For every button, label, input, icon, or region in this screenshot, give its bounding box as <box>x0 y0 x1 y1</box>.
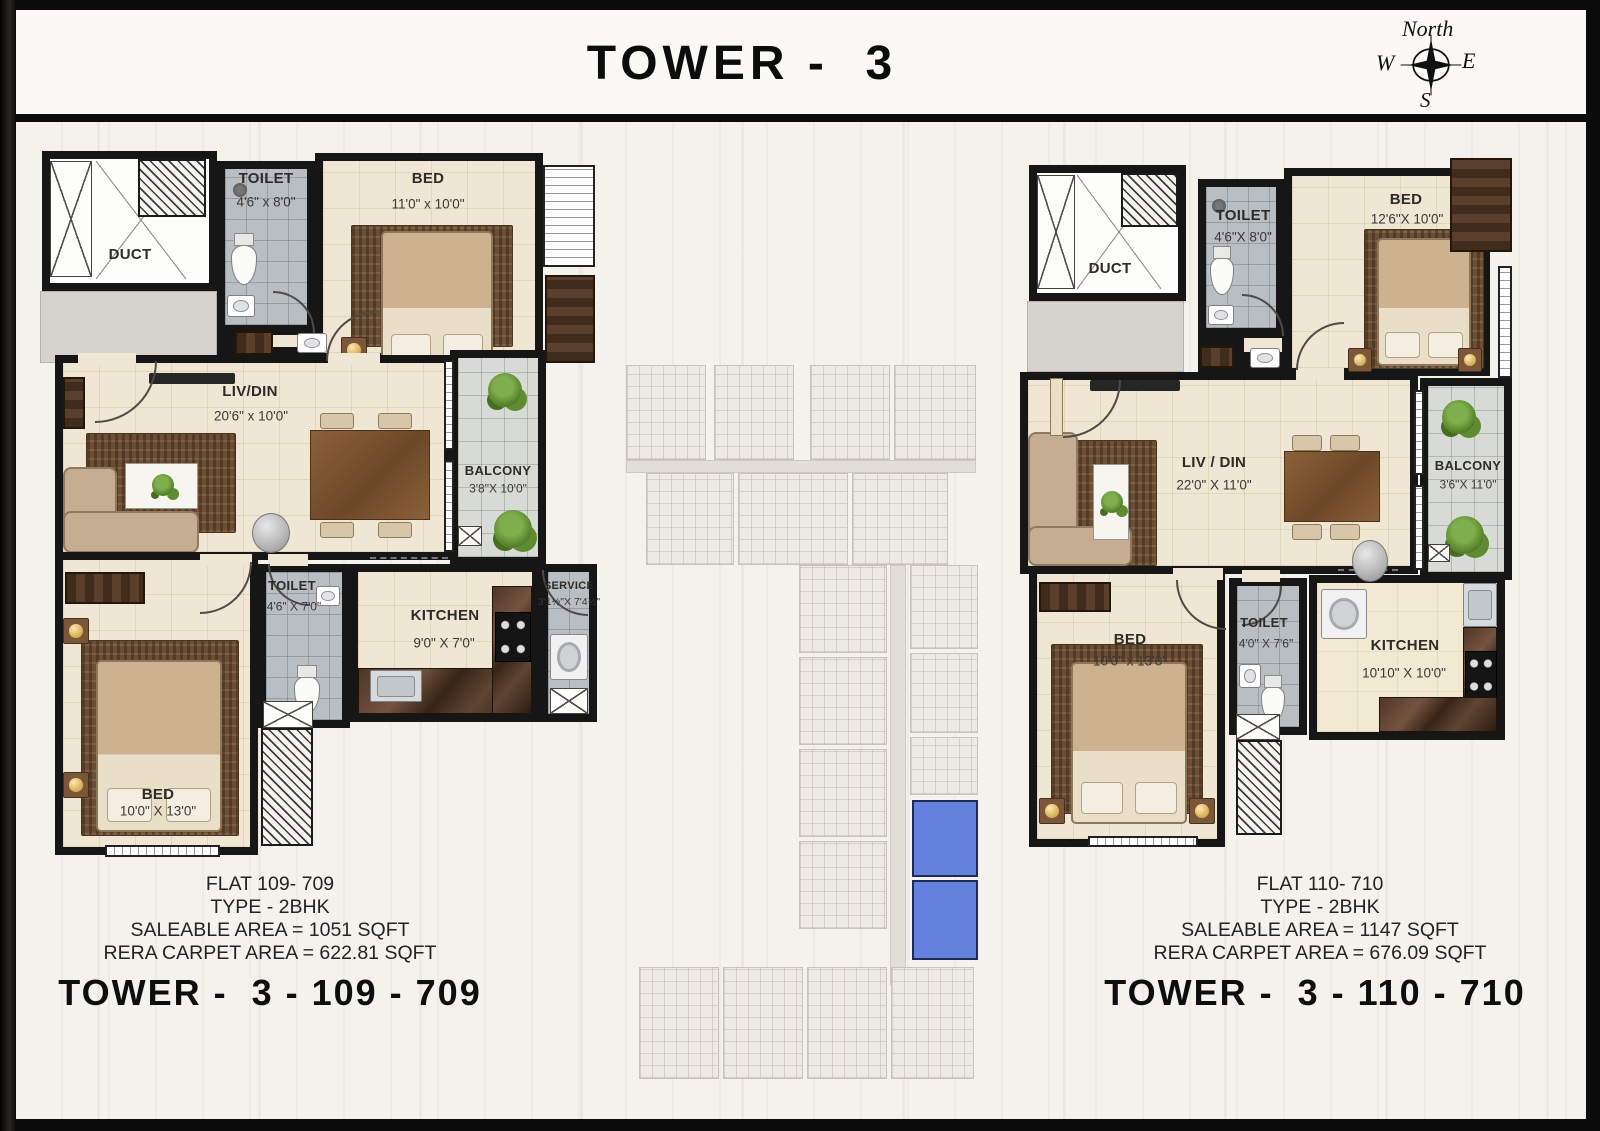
wardrobe <box>545 275 595 363</box>
window-box <box>1498 266 1512 378</box>
side-table <box>63 618 89 644</box>
washing-machine-icon <box>1321 589 1367 639</box>
shaft-xbox <box>1236 714 1280 740</box>
balcony-window <box>444 460 454 552</box>
balcony-window <box>1414 485 1424 570</box>
keyplan-cluster <box>891 967 974 1079</box>
room-dim-bed-bottom: 10'0" x 13'0" <box>1093 655 1167 670</box>
keyplan-cluster <box>910 653 978 733</box>
chair <box>320 522 354 538</box>
keyplan-corridor <box>890 565 906 985</box>
chair <box>378 522 412 538</box>
side-table <box>1039 798 1065 824</box>
room-label-livdin: LIV / DIN <box>1182 455 1246 472</box>
keyplan-cluster <box>626 365 706 460</box>
room-dim-toilet-bottom: 4'0" X 7'6" <box>1239 637 1293 650</box>
flat-b-info-line: RERA CARPET AREA = 676.09 SQFT <box>1130 942 1510 965</box>
keyplan-cluster <box>646 473 734 565</box>
keyplan-cluster <box>639 967 719 1079</box>
keyplan-cluster <box>738 473 848 565</box>
flat-a-info: FLAT 109- 709 TYPE - 2BHK SALEABLE AREA … <box>80 873 460 965</box>
flat-b-info-line: FLAT 110- 710 <box>1130 873 1510 896</box>
compass-west-label: W <box>1376 50 1394 76</box>
window-strip <box>1088 836 1198 847</box>
room-dim-kitchen: 10'10" X 10'0" <box>1362 667 1446 682</box>
keyplan-cluster <box>799 749 887 837</box>
room-label-balcony: BALCONY <box>465 464 531 478</box>
plant-icon <box>152 474 174 496</box>
chair <box>1330 435 1360 451</box>
keyplan-cluster <box>799 841 887 929</box>
chair <box>378 413 412 429</box>
flat-a-balcony <box>450 350 546 565</box>
room-dim-bed-top: 12'6"X 10'0" <box>1371 213 1444 228</box>
flat-b-kitchen-room <box>1309 575 1505 740</box>
keyplan-highlight-unit-109 <box>912 800 978 877</box>
keyplan-cluster <box>799 657 887 745</box>
shaft-xbox <box>263 701 313 728</box>
room-dim-bed-top: 11'0" x 10'0" <box>391 198 464 213</box>
keyplan-cluster <box>910 565 978 649</box>
kitchen-sink-icon <box>370 670 422 702</box>
washing-machine-icon <box>550 634 588 680</box>
page-title: TOWER - 3 <box>14 36 1470 91</box>
room-label-toilet-top: TOILET <box>1216 208 1271 225</box>
keyplan-cluster <box>894 365 976 460</box>
washbasin-icon <box>1250 348 1280 368</box>
plant-icon <box>1446 516 1484 554</box>
side-table <box>63 772 89 798</box>
flat-a-duct-block <box>42 151 217 291</box>
plant-icon <box>488 373 522 407</box>
keyplan-cluster <box>723 967 803 1079</box>
room-label-kitchen: KITCHEN <box>411 608 480 625</box>
hob-icon <box>495 612 531 662</box>
wall-cabinet <box>63 377 85 429</box>
vanity-counter <box>1200 346 1234 368</box>
room-label-bed-bottom: BED <box>142 787 175 804</box>
hob-icon <box>1465 651 1497 699</box>
room-dim-toilet-top: 4'6" x 8'0" <box>236 196 295 211</box>
flat-a-info-line: FLAT 109- 709 <box>80 873 460 896</box>
room-dim-balcony: 3'8"X 10'0" <box>469 482 527 495</box>
flat-b-ledge-slab <box>1027 301 1184 372</box>
side-table <box>1189 798 1215 824</box>
flat-b-plan: DUCT TOILET 4'6"X 8'0" BED 12'6"X 10'0" … <box>1008 150 1515 832</box>
kitchen-sink-icon <box>1463 583 1497 627</box>
flat-b-info-line: TYPE - 2BHK <box>1130 896 1510 919</box>
washbasin-icon <box>297 333 327 353</box>
keyplan-cluster <box>714 365 794 460</box>
plant-icon <box>1101 491 1123 513</box>
shaft-xbox <box>1037 175 1075 289</box>
wardrobe <box>1039 582 1111 612</box>
dining-table <box>1284 451 1380 522</box>
page-frame: TOWER - 3 North W E S <box>0 0 1600 1131</box>
sofa-seat <box>63 511 199 553</box>
toilet-wc-icon <box>231 245 257 285</box>
double-bed <box>1377 238 1471 366</box>
shaft-hatch <box>1236 740 1282 835</box>
flat-a-tower-label: TOWER - 3 - 109 - 709 <box>40 975 500 1011</box>
keyplan-cluster <box>810 365 890 460</box>
room-dim-kitchen: 9'0" X 7'0" <box>413 637 474 652</box>
room-label-toilet-bottom: TOILET <box>1240 616 1288 630</box>
washbasin-icon <box>1208 305 1234 325</box>
washbasin-icon <box>227 295 255 317</box>
window-box <box>543 165 595 267</box>
side-table <box>1458 348 1482 372</box>
balcony-window <box>444 360 454 450</box>
room-dim-livdin: 22'0" X 11'0" <box>1176 479 1251 494</box>
chair <box>1292 435 1322 451</box>
compass-rose-icon: North W E S <box>1340 14 1520 114</box>
side-table <box>1348 348 1372 372</box>
kitchen-counter <box>1379 697 1497 732</box>
entry-door-leaf <box>1050 378 1063 436</box>
door-opening <box>1173 568 1223 580</box>
room-dim-toilet-top: 4'6"X 8'0" <box>1214 231 1272 246</box>
plant-icon <box>494 510 532 548</box>
flat-b-tower-label: TOWER - 3 - 110 - 710 <box>1085 975 1545 1011</box>
window-strip <box>105 845 220 857</box>
drain-xbox <box>550 688 588 714</box>
room-dim-bed-bottom: 10'0" X 13'0" <box>120 805 196 820</box>
compass-star-icon <box>1395 32 1467 98</box>
water-purifier <box>252 513 290 553</box>
header-bar: TOWER - 3 North W E S <box>14 10 1586 114</box>
room-label-duct: DUCT <box>1089 261 1132 278</box>
chair <box>1330 524 1360 540</box>
keyplan-cluster <box>910 737 978 795</box>
keyplan-cluster <box>807 967 887 1079</box>
shaft-hatch <box>1121 173 1178 227</box>
chair <box>320 413 354 429</box>
dining-table <box>310 430 430 520</box>
keyplan-cluster <box>799 565 887 653</box>
flat-a-info-line: RERA CARPET AREA = 622.81 SQFT <box>80 942 460 965</box>
shaft-xbox <box>50 161 92 277</box>
shaft-hatch <box>261 728 313 846</box>
room-dim-toilet-bottom: 4'6" X 7'0" <box>267 600 321 613</box>
keyplan-corridor <box>626 460 976 473</box>
key-plan <box>618 360 983 1105</box>
coffee-table <box>125 463 198 509</box>
kitchen-opening <box>370 557 448 561</box>
room-dim-livdin: 20'6" x 10'0" <box>214 410 288 425</box>
keyplan-highlight-unit-110 <box>912 880 978 960</box>
vanity-counter <box>235 331 273 355</box>
drain-xbox <box>458 526 482 546</box>
flat-a-info-line: TYPE - 2BHK <box>80 896 460 919</box>
water-purifier <box>1352 540 1388 582</box>
room-dim-service: 3'1½"X 7'4½" <box>538 597 600 609</box>
flat-b-duct-block <box>1029 165 1186 301</box>
door-opening <box>1242 570 1280 582</box>
chair <box>1292 524 1322 540</box>
sheet-body: DUCT TOILET 4'6" x 8'0" BED 11'0" x 10'0… <box>14 122 1586 1119</box>
flat-b-info-line: SALEABLE AREA = 1147 SQFT <box>1130 919 1510 942</box>
wardrobe <box>1450 158 1512 252</box>
room-label-service: SERVICE <box>544 580 594 592</box>
toilet-wc-icon <box>1210 257 1234 295</box>
room-label-bed-bottom: BED <box>1114 632 1147 649</box>
washbasin-icon <box>1239 664 1261 688</box>
coffee-table <box>1093 464 1129 540</box>
room-label-balcony: BALCONY <box>1435 459 1501 473</box>
flat-b-info: FLAT 110- 710 TYPE - 2BHK SALEABLE AREA … <box>1130 873 1510 965</box>
wardrobe <box>65 572 145 604</box>
balcony-window <box>1414 390 1424 475</box>
room-dim-balcony: 3'6"X 11'0" <box>1440 478 1497 491</box>
room-label-bed-top: BED <box>412 171 445 188</box>
room-label-kitchen: KITCHEN <box>1371 638 1440 655</box>
flat-a-info-line: SALEABLE AREA = 1051 SQFT <box>80 919 460 942</box>
shaft-hatch <box>138 159 206 217</box>
room-label-livdin: LIV/DIN <box>222 384 277 401</box>
room-label-toilet-top: TOILET <box>239 171 294 188</box>
room-label-duct: DUCT <box>109 247 152 264</box>
keyplan-cluster <box>852 473 948 565</box>
room-label-toilet-bottom: TOILET <box>268 579 316 593</box>
double-bed <box>1071 662 1187 824</box>
drain-xbox <box>1428 544 1450 562</box>
plant-icon <box>1442 400 1476 434</box>
flat-a-plan: DUCT TOILET 4'6" x 8'0" BED 11'0" x 10'0… <box>40 145 597 872</box>
room-label-bed-top: BED <box>1390 192 1423 209</box>
